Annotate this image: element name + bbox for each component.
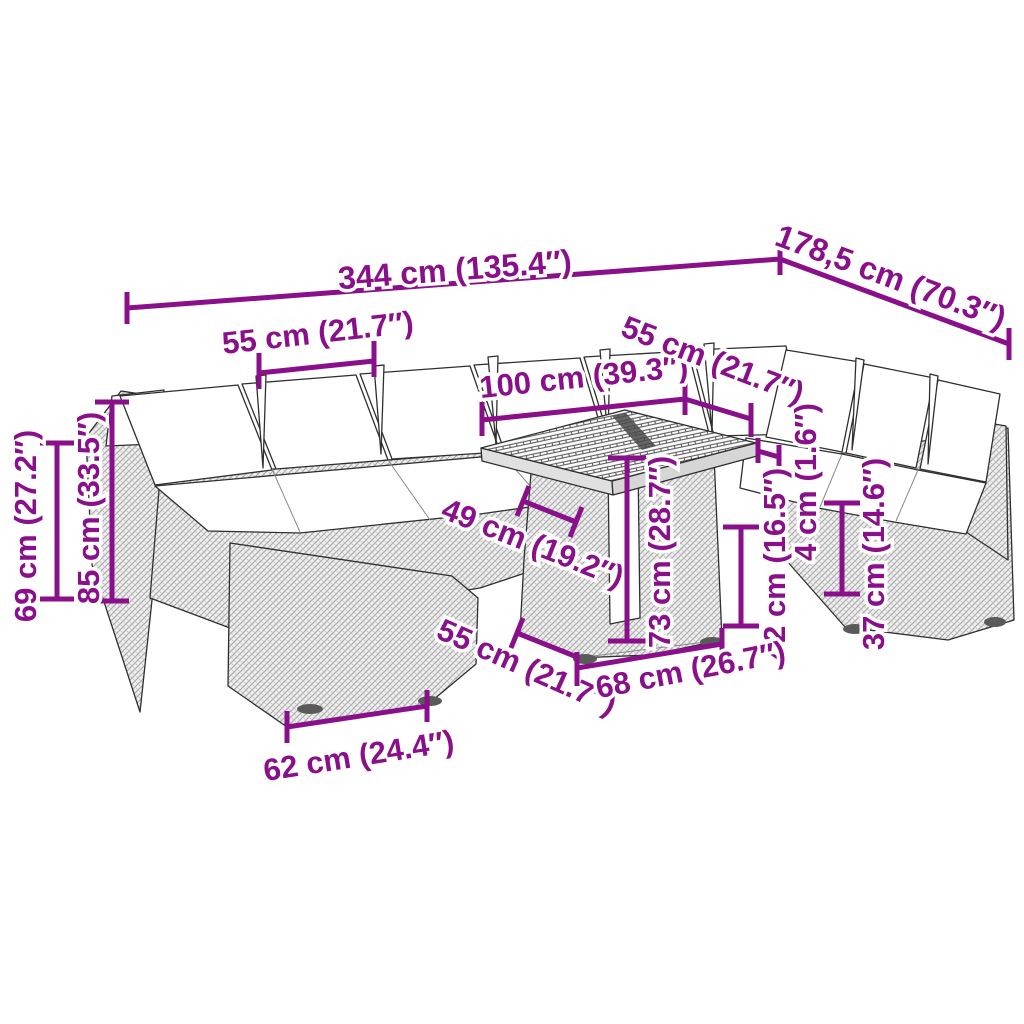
dim-label-seat-width-left: 55 cm (21.7″) bbox=[220, 304, 415, 361]
sofa-foot bbox=[984, 617, 1006, 627]
dim-overall-depth: 178,5 cm (70.3″) bbox=[771, 217, 1011, 360]
product-dimension-diagram: 344 cm (135.4″) 178,5 cm (70.3″) 55 cm (… bbox=[0, 0, 1024, 1024]
dim-label-height-85: 85 cm (33.5″) bbox=[71, 412, 106, 604]
dim-label-overall-depth: 178,5 cm (70.3″) bbox=[771, 217, 1011, 336]
dim-label-module-width-62: 62 cm (24.4″) bbox=[261, 723, 456, 788]
dim-overall-width: 344 cm (135.4″) bbox=[127, 243, 780, 324]
sofa-foot bbox=[297, 704, 323, 714]
dim-label-height-42: 42 cm (16.5″) bbox=[757, 468, 792, 660]
dim-label-thickness-4: 4 cm (1.6″) bbox=[788, 403, 823, 561]
dim-label-height-37: 37 cm (14.6″) bbox=[856, 458, 891, 650]
dim-label-height-69: 69 cm (27.2″) bbox=[8, 430, 43, 622]
dim-height-69: 69 cm (27.2″) bbox=[8, 430, 74, 622]
dim-height-42: 42 cm (16.5″) bbox=[723, 468, 792, 660]
dim-label-overall-width: 344 cm (135.4″) bbox=[337, 243, 573, 296]
screenshot-canvas: 344 cm (135.4″) 178,5 cm (70.3″) 55 cm (… bbox=[0, 0, 1024, 1024]
dim-label-table-height-73: 73 cm (28.7″) bbox=[642, 456, 677, 648]
